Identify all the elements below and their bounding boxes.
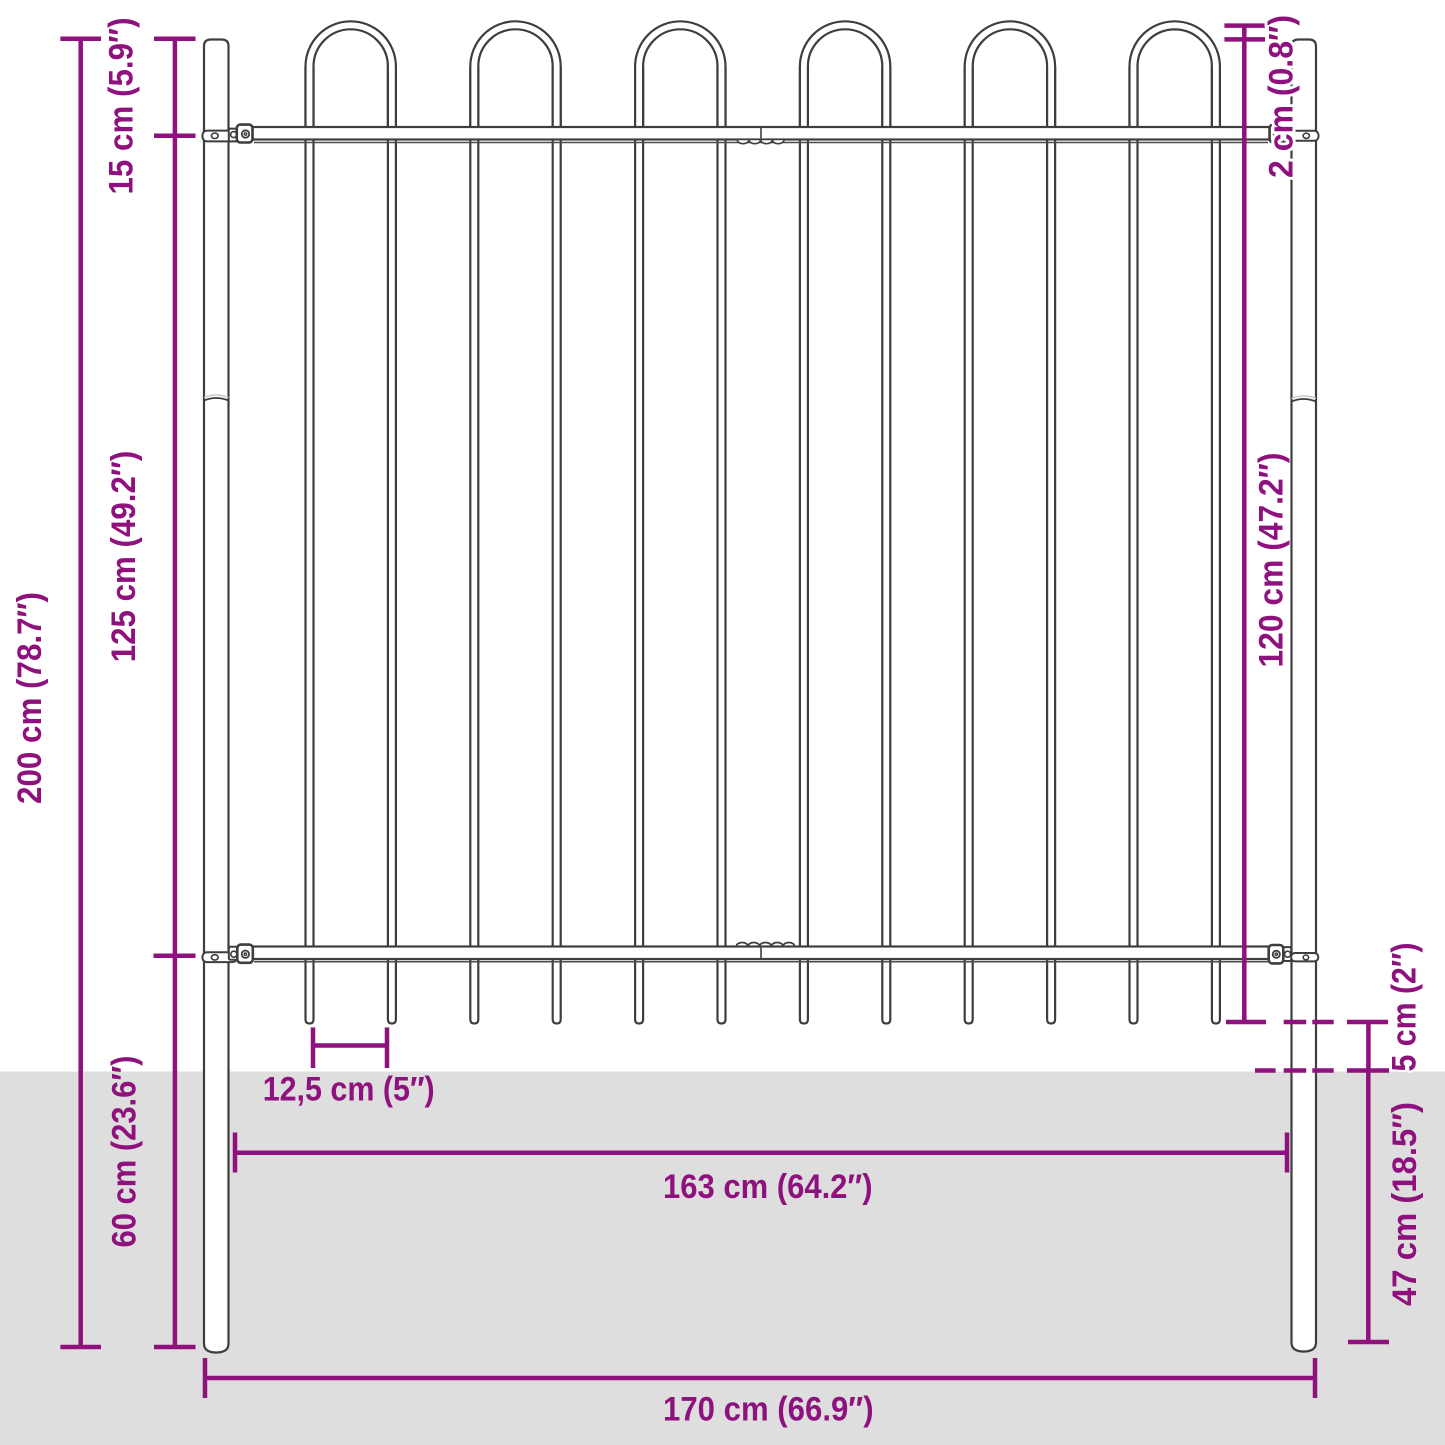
svg-text:60 cm (23.6″): 60 cm (23.6″) [106, 1056, 144, 1248]
svg-text:5 cm (2″): 5 cm (2″) [1386, 943, 1424, 1072]
svg-text:170 cm (66.9″): 170 cm (66.9″) [663, 1391, 874, 1429]
svg-text:15 cm (5.9″): 15 cm (5.9″) [103, 18, 141, 195]
svg-text:163 cm (64.2″): 163 cm (64.2″) [663, 1168, 873, 1206]
svg-text:2 cm (0.8″): 2 cm (0.8″) [1263, 15, 1301, 178]
svg-text:12,5 cm (5″): 12,5 cm (5″) [263, 1071, 435, 1109]
svg-text:125 cm (49.2″): 125 cm (49.2″) [105, 451, 143, 663]
svg-text:200 cm (78.7″): 200 cm (78.7″) [11, 592, 49, 804]
svg-text:47 cm (18.5″): 47 cm (18.5″) [1386, 1102, 1424, 1306]
svg-text:120 cm (47.2″): 120 cm (47.2″) [1253, 453, 1291, 668]
